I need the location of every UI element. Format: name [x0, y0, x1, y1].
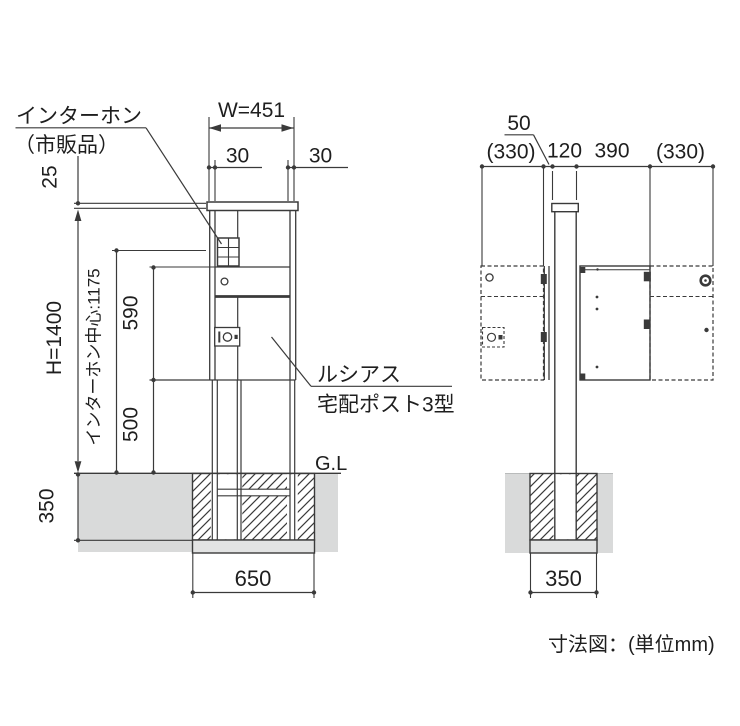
- dim-dot: [151, 378, 155, 382]
- mounting-bracket: [541, 266, 549, 380]
- dim-120-label: 120: [547, 140, 582, 163]
- dim-350-side-label: 350: [545, 566, 582, 591]
- intercom-label-line1: インターホン: [16, 105, 142, 128]
- push-button: [221, 278, 228, 285]
- side-view-drawing: 50 (330) 120 390 (330) 350: [480, 112, 715, 598]
- rivet-dot: [596, 296, 599, 299]
- arrow-right: [282, 124, 294, 131]
- dim-dot: [207, 165, 211, 169]
- dim-dot: [191, 590, 195, 594]
- dim-590-label: 590: [120, 295, 143, 330]
- dim-dot: [76, 538, 80, 542]
- dim-dot: [114, 470, 118, 474]
- dim-390-label: 390: [594, 140, 629, 163]
- dim-50-label: 50: [507, 112, 530, 135]
- door-lock-front: [215, 328, 240, 347]
- dim-dot: [312, 590, 316, 594]
- front-view-drawing: G.L インターホン （市販品） ルシアス 宅配ポスト3型 W=451: [14, 99, 455, 598]
- dim-30-left-label: 30: [226, 145, 249, 168]
- dim-dot: [76, 472, 80, 476]
- dim-30-right-label: 30: [309, 145, 332, 168]
- door-swing-outline: [650, 266, 713, 380]
- dim-dot: [528, 590, 532, 594]
- dim-650-label: 650: [235, 566, 272, 591]
- dim-650: 650: [191, 553, 317, 598]
- door-swing-outline: [481, 266, 544, 380]
- dim-w451: W=451: [209, 99, 294, 201]
- dim-dot: [292, 165, 296, 169]
- dim-h1400: H=1400: [43, 210, 81, 473]
- foundation-crossbar: [217, 489, 290, 496]
- dim-dot: [213, 165, 217, 169]
- dim-dot: [114, 248, 118, 252]
- dim-dot: [151, 470, 155, 474]
- dim-dot: [76, 201, 80, 205]
- foundation-leg-channel-right: [287, 474, 298, 539]
- footing-slab-side: [530, 540, 597, 553]
- dim-h1400-label: H=1400: [43, 301, 66, 375]
- intercom-leader-line: [146, 128, 222, 244]
- dim-dot: [151, 265, 155, 269]
- dim-350-side: 350: [528, 553, 598, 598]
- product-label-line2: 宅配ポスト3型: [317, 394, 455, 417]
- dim-30-margins: 30 30: [207, 145, 348, 202]
- parcel-box-side: [580, 266, 651, 380]
- dim-330-right-label: (330): [656, 141, 705, 164]
- hinge-block: [541, 332, 547, 342]
- dimension-drawing-page: G.L インターホン （市販品） ルシアス 宅配ポスト3型 W=451: [0, 0, 740, 726]
- arrow-down: [75, 461, 82, 473]
- dim-330-left-label: (330): [486, 141, 535, 164]
- box-mount-block: [580, 374, 585, 380]
- foundation-pole-channel: [554, 474, 577, 539]
- lock-ghost-dial: [488, 333, 496, 341]
- rivet-dot: [596, 308, 599, 311]
- dim-dot: [550, 164, 554, 168]
- dim-chain-side-top: 50 (330) 120 390 (330): [480, 112, 715, 266]
- gl-label: G.L: [315, 453, 347, 475]
- intercom-label-line2: （市販品）: [14, 134, 119, 157]
- pole-cap: [552, 204, 579, 212]
- product-leader-line: [272, 337, 312, 386]
- hinge-block: [541, 274, 547, 284]
- dimension-drawing: G.L インターホン （市販品） ルシアス 宅配ポスト3型 W=451: [0, 0, 740, 726]
- knob-ghost-center: [704, 279, 707, 282]
- latch-dot: [704, 328, 708, 332]
- dim-intercom-center: インターホン中心:1175: [85, 248, 207, 474]
- dim-dot: [286, 165, 290, 169]
- dim-25-label: 25: [39, 165, 62, 188]
- box-mount-block: [580, 267, 585, 273]
- product-label-line1: ルシアス: [317, 364, 401, 387]
- dim-w451-label: W=451: [218, 99, 285, 122]
- dim-590-500: 590 500: [120, 265, 216, 474]
- box-hinge-block: [644, 320, 651, 330]
- arrow-up: [75, 210, 82, 222]
- dim-dot: [574, 164, 578, 168]
- drawing-caption: 寸法図：(単位mm): [548, 633, 715, 656]
- lock-ghost-keyhole: [499, 335, 503, 340]
- dim-intercom-center-label: インターホン中心:1175: [85, 268, 104, 445]
- door-swing-dashed-left: [481, 266, 544, 380]
- dim-500-label: 500: [120, 407, 143, 442]
- box-outline: [580, 266, 650, 380]
- dim-dot: [594, 590, 598, 594]
- door-swing-dashed-right: [650, 266, 713, 380]
- lock-keyhole: [235, 335, 238, 339]
- arrow-left: [209, 124, 221, 131]
- post-cap-front: [207, 202, 298, 211]
- rivet-dot: [596, 268, 598, 270]
- rivet-dot: [596, 366, 599, 369]
- dim-350-front-label: 350: [36, 488, 59, 523]
- button-ghost: [486, 274, 493, 281]
- footing-slab-front: [193, 540, 315, 553]
